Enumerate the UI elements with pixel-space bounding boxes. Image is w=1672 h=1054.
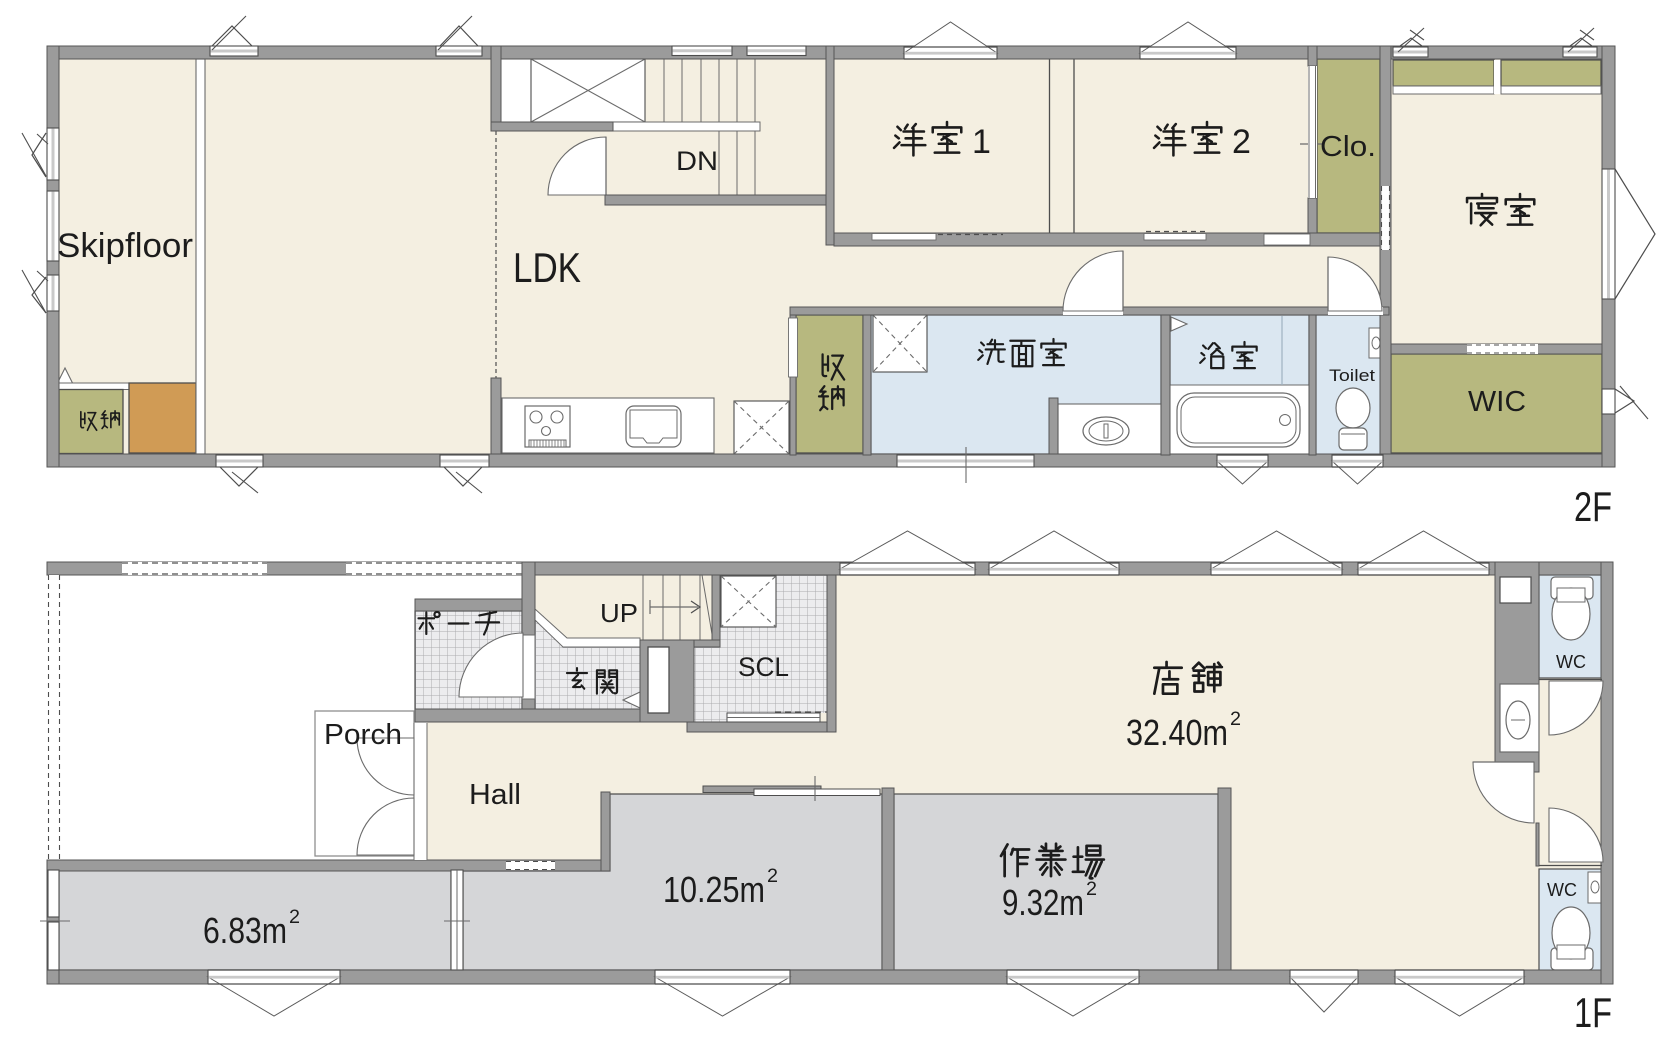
svg-text:10.25m: 10.25m (663, 869, 765, 910)
svg-text:Hall: Hall (469, 779, 521, 811)
svg-text:WC: WC (1547, 880, 1577, 900)
svg-text:2F: 2F (1574, 483, 1612, 530)
svg-text:UP: UP (600, 598, 638, 628)
svg-text:2: 2 (1232, 123, 1251, 161)
svg-text:Toilet: Toilet (1329, 366, 1375, 385)
svg-text:WC: WC (1556, 652, 1586, 672)
svg-text:1: 1 (972, 123, 991, 161)
svg-text:2: 2 (767, 865, 778, 887)
svg-text:Clo.: Clo. (1320, 131, 1376, 163)
svg-text:9.32m: 9.32m (1002, 882, 1084, 923)
svg-text:SCL: SCL (738, 652, 789, 682)
svg-text:Porch: Porch (324, 719, 402, 751)
svg-text:DN: DN (676, 146, 718, 176)
svg-text:1F: 1F (1574, 989, 1612, 1036)
svg-text:2: 2 (1230, 708, 1241, 730)
svg-text:2: 2 (1086, 878, 1097, 900)
svg-text:6.83m: 6.83m (203, 910, 287, 951)
svg-text:Skipfloor: Skipfloor (57, 227, 193, 265)
svg-text:32.40m: 32.40m (1126, 712, 1228, 753)
svg-text:LDK: LDK (513, 244, 581, 291)
svg-text:2: 2 (289, 906, 300, 928)
svg-text:WIC: WIC (1468, 386, 1526, 418)
